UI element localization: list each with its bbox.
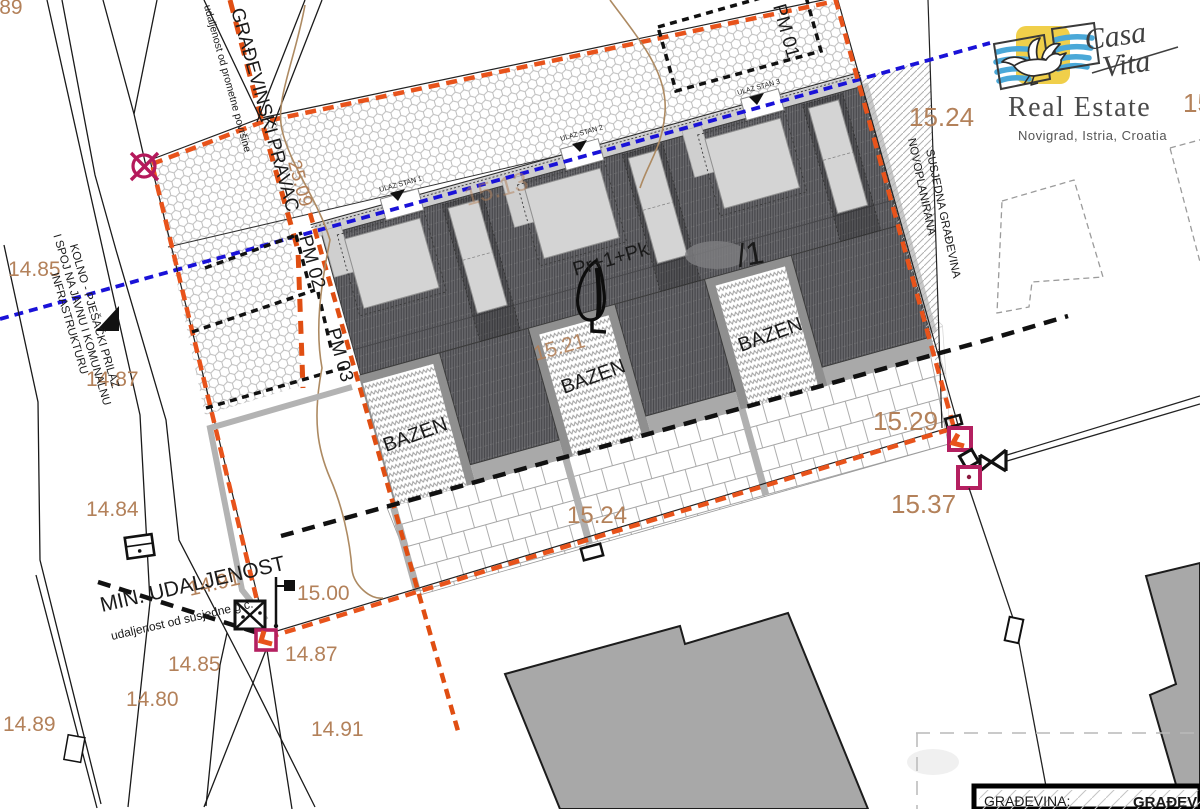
svg-text:14.89: 14.89 — [0, 0, 23, 19]
svg-text:14.91: 14.91 — [311, 718, 364, 741]
svg-text:14.84: 14.84 — [86, 498, 139, 521]
svg-text:Vita: Vita — [1100, 45, 1152, 84]
svg-text:15.24: 15.24 — [567, 502, 627, 529]
svg-text:Novigrad, Istria, Croatia: Novigrad, Istria, Croatia — [1018, 128, 1167, 143]
svg-text:14.80: 14.80 — [126, 688, 179, 711]
svg-text:15.24: 15.24 — [909, 102, 974, 132]
svg-text:15.29: 15.29 — [873, 406, 938, 436]
svg-text:14.89: 14.89 — [3, 713, 56, 736]
svg-text:14.85: 14.85 — [168, 653, 221, 676]
svg-text:14.87: 14.87 — [285, 643, 338, 666]
svg-text:GRAĐEVINA:: GRAĐEVINA: — [984, 793, 1070, 809]
svg-text:15.00: 15.00 — [297, 582, 350, 605]
svg-text:GRAĐEV: GRAĐEV — [1133, 794, 1197, 809]
svg-text:Real Estate: Real Estate — [1008, 92, 1151, 123]
svg-text:15.37: 15.37 — [891, 489, 956, 519]
svg-text:15.2: 15.2 — [1183, 88, 1200, 118]
